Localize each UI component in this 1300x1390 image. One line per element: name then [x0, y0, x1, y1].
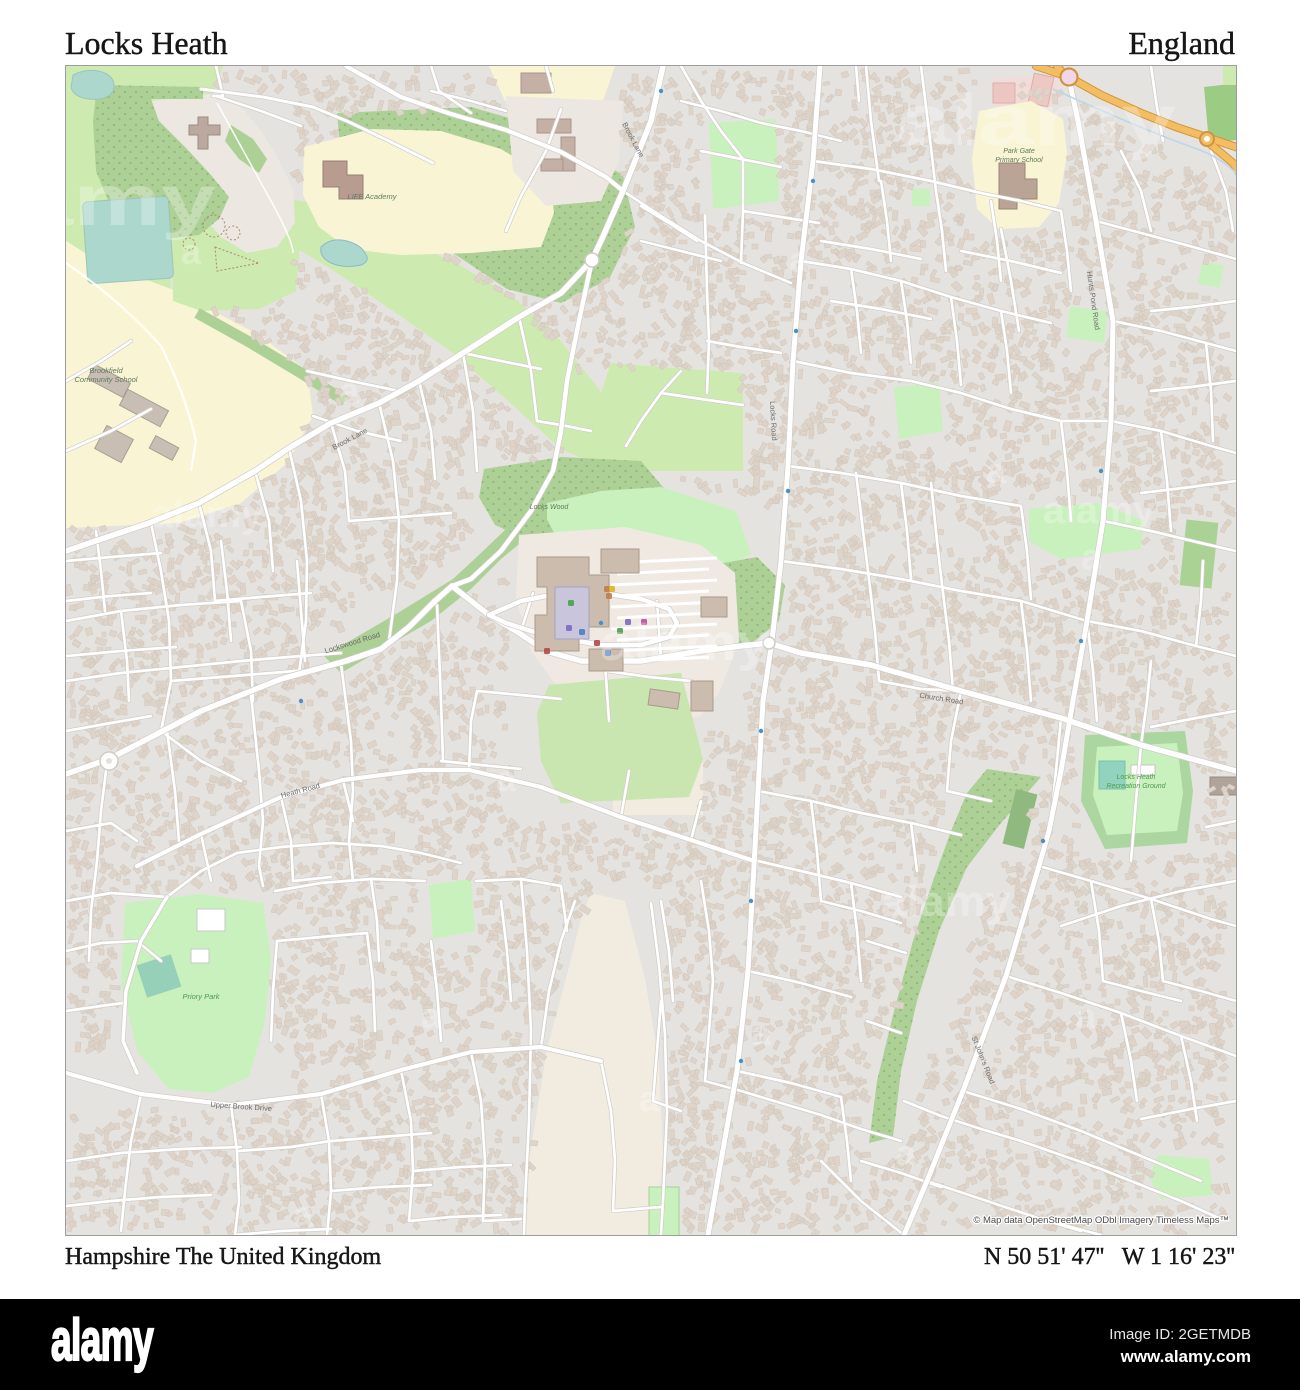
svg-text:Priory Park: Priory Park: [182, 992, 220, 1001]
svg-text:a: a: [896, 1132, 917, 1173]
svg-text:alamy: alamy: [896, 81, 1176, 161]
svg-text:alamy: alamy: [600, 614, 770, 672]
svg-text:a: a: [339, 370, 360, 411]
svg-text:a: a: [421, 995, 442, 1036]
svg-text:a: a: [496, 758, 517, 799]
svg-text:Community School: Community School: [75, 375, 138, 384]
svg-text:alamy: alamy: [1043, 490, 1155, 532]
svg-text:alamy: alamy: [881, 877, 1012, 926]
svg-text:a: a: [639, 1078, 660, 1119]
svg-text:Recreation Ground: Recreation Ground: [1106, 783, 1166, 790]
svg-text:a: a: [751, 1012, 772, 1053]
svg-text:LIFE Academy: LIFE Academy: [348, 192, 398, 201]
svg-text:Locks Wood: Locks Wood: [530, 504, 570, 511]
svg-text:Brookfield: Brookfield: [89, 366, 123, 375]
svg-text:Locks Heath: Locks Heath: [1117, 774, 1156, 781]
svg-text:alamy: alamy: [151, 494, 263, 536]
svg-text:a: a: [293, 1193, 314, 1234]
svg-text:a: a: [1081, 536, 1102, 577]
svg-text:a: a: [181, 231, 202, 272]
svg-text:© Map data OpenStreetMap ODbl: © Map data OpenStreetMap ODbl Imagery Ti…: [973, 1215, 1229, 1226]
svg-text:alamy: alamy: [65, 161, 216, 241]
svg-text:a: a: [789, 239, 810, 280]
svg-text:a: a: [1076, 995, 1097, 1036]
svg-text:a: a: [986, 450, 1007, 491]
